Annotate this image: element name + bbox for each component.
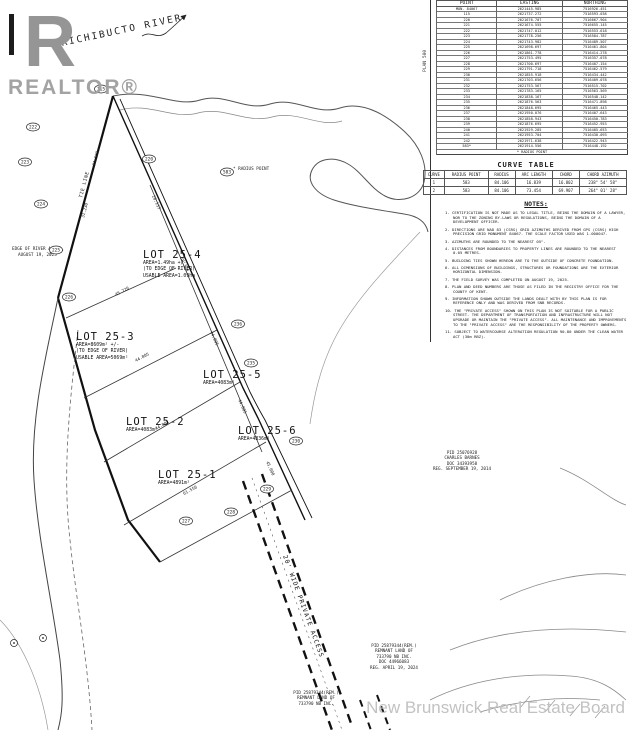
contour-lines xyxy=(430,468,626,712)
curve-table-block: CURVE TABLE CURVE RADIUS POINT RADIUS AR… xyxy=(423,161,629,195)
river-label: RICHIBUCTO RIVER xyxy=(60,12,183,48)
point-table-row: MON. 840672621445.9857516926.451 xyxy=(437,7,628,12)
point-table-row: 2302621855.9187516434.442 xyxy=(437,72,628,77)
dimension-label: 44.805 xyxy=(134,351,150,363)
dimension-label: 44.805 xyxy=(237,398,248,414)
col-radius: RADIUS xyxy=(488,171,515,179)
survey-monument-icon xyxy=(11,640,18,647)
tables-panel: POINT EASTING NORTHING MON. 840672621445… xyxy=(430,0,629,342)
table-cell: 73.454 xyxy=(515,187,552,195)
curve-table-row: 258384.10673.45469.907264° 01' 28" xyxy=(424,187,627,195)
lot-25-2-label: LOT 25-2 AREA=4083m² xyxy=(126,416,185,434)
note-item: 6. ALL DIMENSIONS OF BUILDINGS, STRUCTUR… xyxy=(445,266,627,275)
radius-point-label: * RADIUS POINT xyxy=(233,166,270,172)
point-table-row: 2392621876.6957516452.953 xyxy=(437,122,628,127)
point-table-row: 2282621700.6977516407.154 xyxy=(437,61,628,66)
point-marker-number: 225 xyxy=(52,248,60,254)
col-curve: CURVE xyxy=(424,171,445,179)
point-marker: 222 xyxy=(27,123,40,131)
point-marker-number: 222 xyxy=(29,125,37,131)
point-marker: 223 xyxy=(19,158,32,166)
point-table-row: 2402621929.2857516405.653 xyxy=(437,127,628,132)
survey-monument-icon xyxy=(40,635,47,642)
point-marker-number: 228 xyxy=(227,510,235,516)
private-access-label: 20' WIDE PRIVATE ACCESS xyxy=(281,554,325,659)
col-chord-azimuth: CHORD AZIMUTH xyxy=(579,171,626,179)
river-shoreline xyxy=(113,94,428,232)
point-table-row: 583*2621914.5567516448.192 xyxy=(437,144,628,149)
curve-table-title: CURVE TABLE xyxy=(423,161,629,169)
col-radius-point: RADIUS POINT xyxy=(444,171,488,179)
lot-area: AREA=4836m² xyxy=(238,437,297,443)
point-marker: 225 xyxy=(50,246,63,254)
road-edge-2 xyxy=(262,474,352,726)
note-item: 5. BUILDING TIES SHOWN HEREON ARE TO THE… xyxy=(445,259,627,264)
point-table-row: 2272621753.4957516357.078 xyxy=(437,56,628,61)
point-marker-number: 220 xyxy=(145,157,153,163)
table-cell: 84.106 xyxy=(488,187,515,195)
parcel-reg: REG. APRIL 19, 2024 xyxy=(346,665,442,670)
notes-block: NOTES: 1. CERTIFICATION IS NOT MADE AS T… xyxy=(445,200,627,339)
lot-area-note: (TO EDGE OF RIVER) xyxy=(76,349,135,355)
point-table-row: 2292621791.7187516462.579 xyxy=(437,67,628,72)
curve-table-header: CURVE RADIUS POINT RADIUS ARC LENGTH CHO… xyxy=(424,171,627,179)
note-item: 10. THE "PRIVATE ACCESS" SHOWN ON THIS P… xyxy=(445,309,627,328)
point-table-row: 2322621753.5677516515.702 xyxy=(437,83,628,88)
point-table-row: 2262621861.7787516414.278 xyxy=(437,50,628,55)
point-table-row: 2252621698.6977516461.804 xyxy=(437,45,628,50)
lot-25-1-label: LOT 25-1 AREA=4891m² xyxy=(158,469,217,487)
table-cell: 264° 01' 28" xyxy=(579,187,626,195)
lot-name: LOT 25-5 xyxy=(203,369,262,381)
note-item: 1. CERTIFICATION IS NOT MADE AS TO LEGAL… xyxy=(445,211,627,225)
table-cell: 238° 54' 58" xyxy=(579,179,626,187)
survey-plan-page: RICHIBUCTO RIVER EDGE OF RIVER AS OF AUG… xyxy=(0,0,629,730)
point-table-row: 2242621743.9827516489.507 xyxy=(437,39,628,44)
point-table-row: 2352621876.5637516471.898 xyxy=(437,100,628,105)
notes-list: 1. CERTIFICATION IS NOT MADE AS TO LEGAL… xyxy=(445,211,627,339)
river-shoreline-2 xyxy=(120,108,342,123)
lot-area: AREA=4083m² xyxy=(126,428,185,434)
lot-area-note: (TO EDGE OF RIVER) xyxy=(143,267,202,273)
notes-title: NOTES: xyxy=(445,200,627,208)
point-marker: 220 xyxy=(143,155,156,163)
lot-25-5-label: LOT 25-5 AREA=4083m² xyxy=(203,369,262,387)
table-cell: 583 xyxy=(444,187,488,195)
table-cell: 84.106 xyxy=(488,179,515,187)
point-table-row: 2312621703.6567516409.078 xyxy=(437,78,628,83)
point-marker: 226 xyxy=(63,293,76,301)
point-table: POINT EASTING NORTHING MON. 840672621445… xyxy=(436,0,628,155)
col-arc-length: ARC LENGTH xyxy=(515,171,552,179)
lot-25-3-label: LOT 25-3 AREA=8609m² +/- (TO EDGE OF RIV… xyxy=(76,331,135,362)
note-item: 7. THE FIELD SURVEY WAS COMPLETED ON AUG… xyxy=(445,278,627,283)
board-watermark: New Brunswick Real Estate Board xyxy=(205,698,625,718)
table-cell: 2 xyxy=(424,187,445,195)
point-table-body: MON. 840672621445.9857516926.45111526217… xyxy=(437,7,628,150)
lot-name: LOT 25-1 xyxy=(158,469,217,481)
point-marker-number: 224 xyxy=(37,202,45,208)
point-table-row: 2422621971.6387516422.943 xyxy=(437,138,628,143)
point-marker-number: 236 xyxy=(234,322,242,328)
point-table-row: 2362621848.6957516465.443 xyxy=(437,105,628,110)
lot-area: AREA=4891m² xyxy=(158,481,217,487)
lot-usable-area: USABLE AREA=1.09ha xyxy=(143,274,202,280)
point-marker: 227 xyxy=(180,517,193,525)
parcel-barnes-label: PID 25076928 CHARLES BARNES DOC 34393958… xyxy=(414,450,510,472)
realtor-logo-icon: R xyxy=(24,6,76,78)
point-marker: 583 xyxy=(221,168,234,176)
curve-table-row: 158384.10616.83916.802238° 54' 58" xyxy=(424,179,627,187)
parcel-remnant-label: PID 25879344(REM.) REMNANT LAND OF 73379… xyxy=(346,643,442,670)
creek-line xyxy=(310,232,420,424)
point-table-footnote: * RADIUS POINT xyxy=(437,149,628,154)
curve-table-body: 158384.10616.83916.802238° 54' 58"258384… xyxy=(424,179,627,195)
table-cell: 1 xyxy=(424,179,445,187)
note-item: 4. DISTANCES FROM BOUNDARIES TO PROPERTY… xyxy=(445,247,627,256)
point-table-row: 2372621950.0767516407.643 xyxy=(437,111,628,116)
lot-area: AREA=4083m² xyxy=(203,381,262,387)
parcel-reg: REG. SEPTEMBER 19, 2014 xyxy=(414,466,510,471)
river-edge-line xyxy=(33,298,62,730)
note-item: 3. AZIMUTHS ARE ROUNDED TO THE NEAREST 0… xyxy=(445,240,627,245)
point-marker: 224 xyxy=(35,200,48,208)
note-item: 2. DIRECTIONS ARE NAD 83 (CSRS) GRID AZI… xyxy=(445,228,627,237)
lot-division-lines xyxy=(66,268,292,562)
point-marker: 235 xyxy=(245,359,258,367)
point-table-row: 2222621747.0127516553.618 xyxy=(437,28,628,33)
table-cell: 69.907 xyxy=(552,187,579,195)
dimension-label: 31.230 xyxy=(80,202,89,218)
point-marker-number: 226 xyxy=(65,295,73,301)
lot-usable-area: USABLE AREA=5069m² xyxy=(76,356,135,362)
table-cell: 16.802 xyxy=(552,179,579,187)
point-table-row: 2232621778.2567516584.787 xyxy=(437,34,628,39)
lot-25-4-label: LOT 25-4 AREA=1.49ha +/- (TO EDGE OF RIV… xyxy=(143,249,202,280)
point-marker-number: 223 xyxy=(21,160,29,166)
point-marker: 236 xyxy=(232,320,245,328)
lot-name: LOT 25-3 xyxy=(76,331,135,343)
table-cell: 583 xyxy=(444,179,488,187)
point-marker-number: 235 xyxy=(247,361,255,367)
point-marker: 228 xyxy=(225,508,238,516)
realtor-logo-word: REALTOR® xyxy=(8,76,139,100)
point-table-row: 2212621674.5557516655.145 xyxy=(437,23,628,28)
note-item: 11. SUBJECT TO WATERCOURSE ALTERATION RE… xyxy=(445,330,627,339)
ne-boundary-line xyxy=(113,96,305,520)
lot-25-6-label: LOT 25-6 AREA=4836m² xyxy=(238,425,297,443)
point-table-row: 2342621838.1677516548.142 xyxy=(437,94,628,99)
note-item: 9. INFORMATION SHOWN OUTSIDE THE LANDS D… xyxy=(445,297,627,306)
point-table-row: 2202621676.7077516667.904 xyxy=(437,17,628,22)
point-table-row: 2332621783.1657516563.569 xyxy=(437,89,628,94)
curve-table: CURVE RADIUS POINT RADIUS ARC LENGTH CHO… xyxy=(423,170,627,195)
dimension-label: 45.720 xyxy=(114,285,130,297)
point-table-row: 2412621953.7047516430.093 xyxy=(437,133,628,138)
setback-dashed-line xyxy=(67,330,92,730)
point-table-header: POINT EASTING NORTHING xyxy=(437,1,628,7)
plan-ref-label: PLAN 500 xyxy=(422,50,428,72)
lot-name: LOT 25-6 xyxy=(238,425,297,437)
scan-edge-bar xyxy=(9,14,14,55)
col-chord: CHORD xyxy=(552,171,579,179)
dimension-label: 45.000 xyxy=(265,460,276,476)
point-table-row: 1152621737.2727516593.038 xyxy=(437,12,628,17)
lot-name: LOT 25-2 xyxy=(126,416,185,428)
shore-contour xyxy=(0,620,48,730)
table-cell: 16.839 xyxy=(515,179,552,187)
point-marker: 229 xyxy=(261,485,274,493)
note-item: 8. PLAN AND DEED NUMBERS ARE THOSE AS FI… xyxy=(445,285,627,294)
point-marker-number: 229 xyxy=(263,487,271,493)
point-table-row: 2382621858.9437516450.783 xyxy=(437,116,628,121)
lot-name: LOT 25-4 xyxy=(143,249,202,261)
point-marker-number: 227 xyxy=(182,519,190,525)
dimension-label: 24.593 xyxy=(91,150,100,166)
point-marker-number: 583 xyxy=(223,170,231,176)
